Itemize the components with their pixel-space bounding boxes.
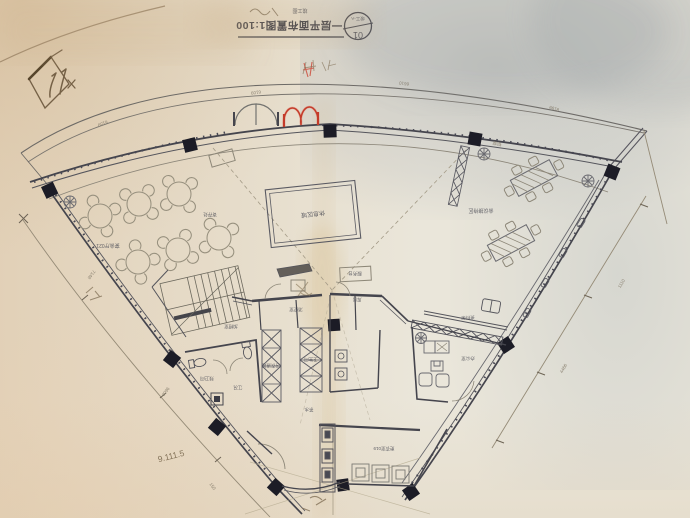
svg-text:办公室: 办公室	[461, 355, 475, 362]
svg-text:茶水: 茶水	[304, 407, 313, 413]
svg-text:服务台: 服务台	[348, 270, 362, 277]
svg-text:更衣室019: 更衣室019	[373, 445, 395, 452]
svg-text:宴会厅021: 宴会厅021	[96, 242, 120, 249]
svg-text:卫生间: 卫生间	[304, 356, 318, 363]
svg-text:会议接待区: 会议接待区	[468, 207, 493, 214]
svg-text:寄存处: 寄存处	[203, 211, 217, 218]
svg-text:加相室: 加相室	[224, 323, 238, 330]
svg-text:江况: 江况	[233, 384, 242, 391]
svg-text:残卫间: 残卫间	[200, 375, 214, 382]
svg-text:库房: 库房	[352, 296, 361, 303]
svg-text:污衣道班: 污衣道班	[262, 362, 280, 369]
svg-text:消控室: 消控室	[289, 306, 303, 313]
